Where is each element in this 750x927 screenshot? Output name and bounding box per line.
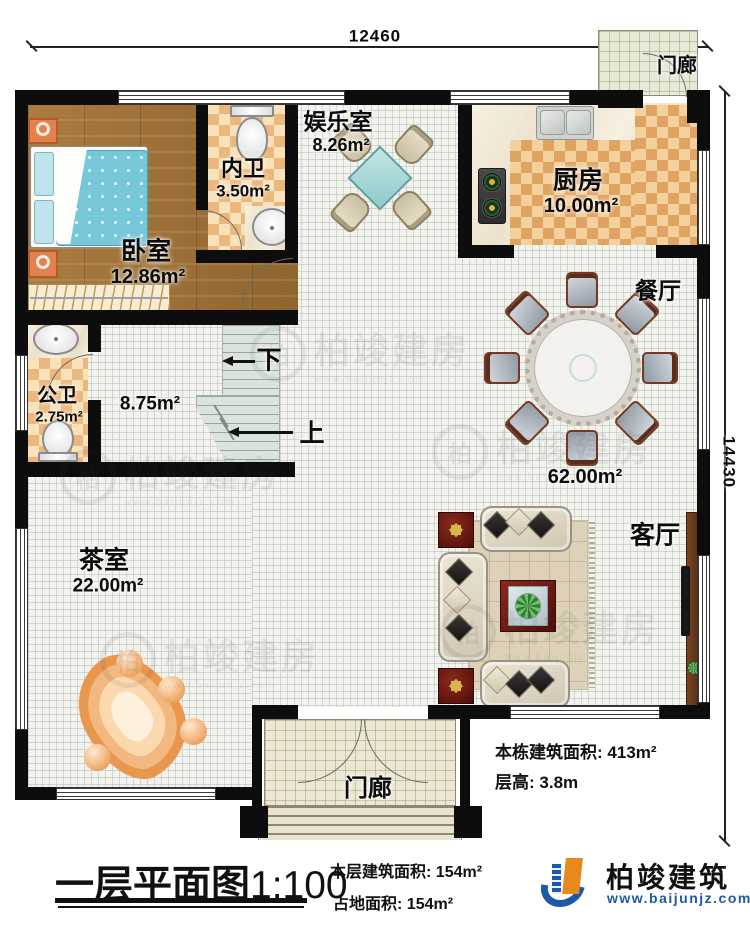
- dining-table-center: [569, 354, 597, 382]
- watermark-badge-char: 柏: [456, 614, 480, 649]
- stairs-up-arrow-icon: [228, 427, 239, 437]
- wall-segment: [196, 103, 208, 210]
- tv-icon: [681, 566, 690, 636]
- stat-value: 3.8m: [539, 773, 578, 792]
- watermark-text: 柏竣建房: [164, 628, 320, 680]
- kitchen-sink-basin: [566, 110, 591, 135]
- wall-segment: [458, 245, 514, 258]
- dimension-label-top: 12460: [349, 28, 401, 45]
- watermark-badge-icon: 柏: [60, 449, 116, 505]
- dining-chair: [642, 352, 678, 384]
- bed-pillow: [34, 152, 54, 196]
- toilet-bowl-icon: [236, 117, 268, 161]
- room-label-kitchen: 厨房: [553, 169, 603, 194]
- side-table: [438, 668, 474, 704]
- stairs-down-label: 下: [256, 349, 281, 374]
- stat-label: 占地面积:: [333, 896, 402, 913]
- window: [56, 787, 216, 800]
- brand-url: www.baijunjz.com: [607, 890, 750, 906]
- title-underline-thin: [58, 906, 304, 908]
- stat-floor-area: 本层建筑面积: 154m²: [330, 858, 482, 882]
- kitchen-sink-basin: [540, 110, 565, 135]
- kitchen-floor-right: [635, 105, 697, 245]
- stat-value: 154m²: [436, 864, 482, 881]
- bed-sheet-fold: [56, 150, 98, 244]
- watermark-url: www.baijunjz.com: [314, 374, 470, 385]
- room-label-porch-top: 门廊: [657, 56, 697, 76]
- wall-segment: [458, 103, 472, 245]
- sink-drain: [54, 337, 58, 341]
- room-label-porch-bottom: 门廊: [344, 777, 392, 801]
- room-area-bedroom: 12.86m²: [111, 267, 186, 287]
- room-area-stair-hall: 8.75m²: [120, 395, 180, 414]
- window: [697, 150, 710, 245]
- room-area-tea: 22.00m²: [73, 577, 144, 596]
- room-area-hall: 62.00m²: [548, 467, 623, 487]
- watermark-badge-icon: 柏: [100, 632, 156, 688]
- watermark-badge-char: 柏: [76, 459, 100, 494]
- window: [697, 555, 710, 703]
- window: [118, 90, 345, 105]
- watermark: 柏 柏竣建房www.baijunjz.com: [250, 322, 470, 385]
- wall-segment: [697, 104, 710, 150]
- stairs-down-arrow-icon: [222, 356, 233, 366]
- stat-value: 413m²: [607, 743, 656, 762]
- wall-segment: [15, 431, 28, 528]
- nightstand-knob-icon: [36, 122, 50, 136]
- stairs-up-label: 上: [299, 422, 324, 447]
- room-label-tea: 茶室: [79, 549, 129, 574]
- watermark-badge-icon: 柏: [432, 424, 488, 480]
- porch-post: [454, 806, 482, 838]
- watermark-url: www.baijunjz.com: [124, 497, 280, 508]
- room-label-bedroom: 卧室: [121, 240, 171, 265]
- porch-steps: [258, 806, 462, 840]
- stairs-up-arrow-line: [239, 431, 293, 434]
- bed-pillow: [34, 200, 54, 244]
- floor-plan-page: { "dimensions": { "top": "12460", "right…: [0, 0, 750, 927]
- side-table: [438, 512, 474, 548]
- watermark-text: 柏竣建房: [124, 445, 280, 497]
- room-label-inner-bath: 内卫: [221, 158, 265, 180]
- window: [15, 528, 28, 730]
- watermark: 柏 柏竣建房www.baijunjz.com: [60, 445, 280, 508]
- watermark-text: 柏竣建房: [504, 600, 660, 652]
- wall-segment: [345, 90, 450, 105]
- stat-building-total: 本栋建筑面积: 413m²: [495, 738, 657, 763]
- window: [510, 705, 660, 719]
- dimension-label-right: 14430: [721, 436, 738, 488]
- wall-segment: [15, 787, 56, 800]
- toilet-tank: [230, 105, 274, 117]
- window: [450, 90, 570, 105]
- wall-segment: [252, 719, 262, 806]
- stove-burner-icon: [482, 198, 502, 218]
- stat-label: 层高:: [495, 773, 535, 792]
- room-label-dining: 餐厅: [635, 280, 681, 303]
- brand-logo-icon: [540, 852, 600, 912]
- watermark-url: www.baijunjz.com: [504, 652, 660, 663]
- title-underline-thick: [55, 898, 307, 903]
- watermark-text: 柏竣建房: [496, 420, 652, 472]
- wall-segment: [697, 450, 710, 555]
- watermark: 柏 柏竣建房www.baijunjz.com: [100, 628, 320, 691]
- room-area-public-bath: 2.75m²: [35, 410, 83, 425]
- stat-floor-height: 层高: 3.8m: [495, 768, 578, 793]
- window: [15, 355, 28, 431]
- room-label-entertainment: 娱乐室: [304, 111, 373, 134]
- room-label-living: 客厅: [630, 524, 680, 549]
- wall-segment: [285, 103, 298, 263]
- watermark-badge-icon: 柏: [440, 604, 496, 660]
- wall-segment: [697, 245, 710, 298]
- wall-segment: [428, 705, 472, 719]
- wall-segment: [252, 705, 298, 719]
- nightstand-knob-icon: [36, 255, 50, 269]
- wall-segment: [15, 90, 118, 105]
- room-area-kitchen: 10.00m²: [544, 196, 619, 216]
- tea-stool: [180, 718, 207, 745]
- stat-label: 本层建筑面积:: [330, 864, 431, 881]
- watermark: 柏 柏竣建房www.baijunjz.com: [440, 600, 660, 663]
- stat-value: 154m²: [407, 896, 453, 913]
- porch-post: [240, 806, 268, 838]
- wall-segment: [656, 245, 697, 258]
- window: [697, 298, 710, 450]
- room-area-entertainment: 8.26m²: [312, 136, 369, 154]
- tea-stool: [84, 744, 111, 771]
- room-area-inner-bath: 3.50m²: [216, 183, 270, 200]
- dining-chair: [484, 352, 520, 384]
- wall-segment: [598, 96, 643, 108]
- stove-burner-icon: [482, 172, 502, 192]
- logo-building-blue-icon: [552, 864, 561, 894]
- sink-drain: [270, 226, 274, 230]
- stat-land-area: 占地面积: 154m²: [333, 890, 453, 914]
- watermark-badge-char: 柏: [116, 642, 140, 677]
- wall-segment: [460, 719, 470, 806]
- wall-segment: [88, 320, 101, 352]
- wardrobe-rail: [30, 297, 168, 299]
- dining-chair: [566, 272, 598, 308]
- room-label-public-bath: 公卫: [37, 386, 77, 406]
- watermark-url: www.baijunjz.com: [164, 680, 320, 691]
- wall-segment: [660, 705, 710, 719]
- watermark-badge-char: 柏: [448, 434, 472, 469]
- watermark-text: 柏竣建房: [314, 322, 470, 374]
- stat-label: 本栋建筑面积:: [495, 743, 603, 762]
